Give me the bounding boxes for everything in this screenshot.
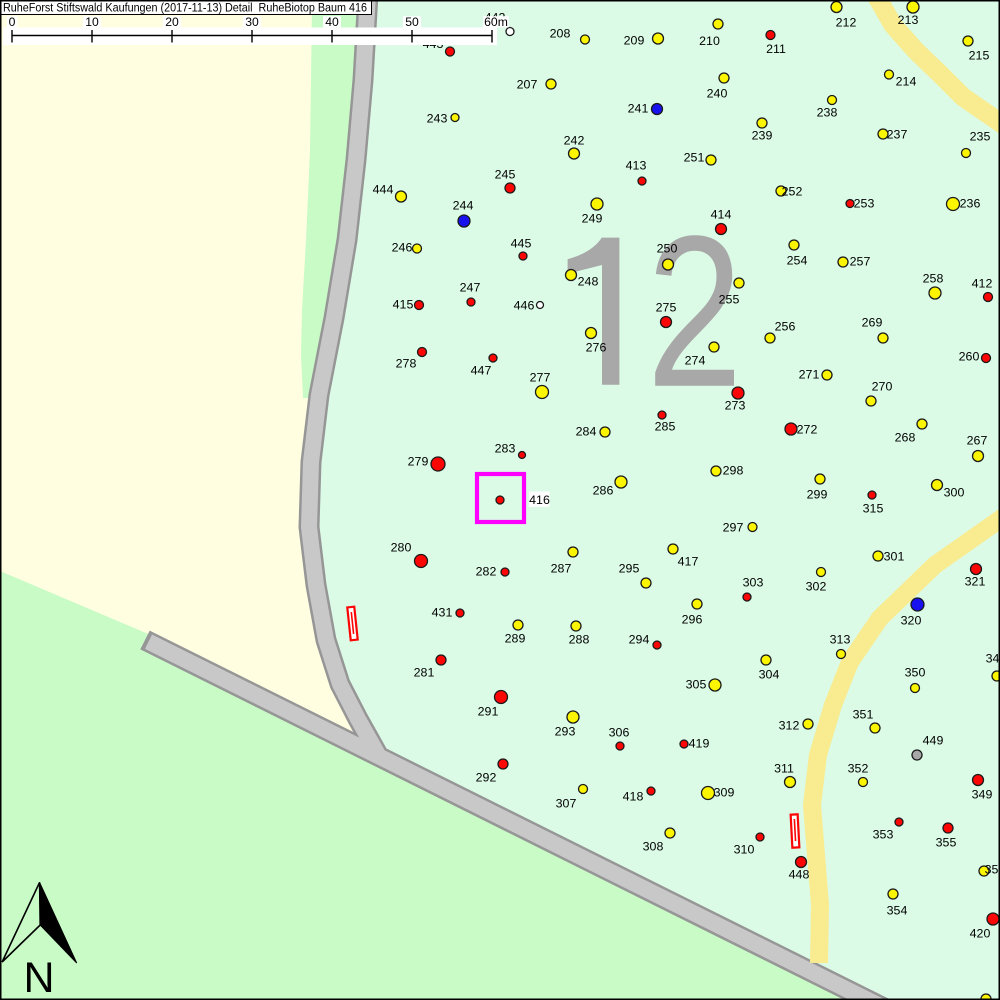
svg-text:257: 257 (850, 254, 871, 268)
svg-text:289: 289 (505, 631, 526, 645)
svg-text:245: 245 (495, 167, 516, 181)
svg-text:235: 235 (970, 129, 991, 143)
svg-text:315: 315 (863, 501, 884, 515)
svg-text:300: 300 (944, 485, 965, 499)
svg-text:215: 215 (969, 48, 990, 62)
svg-text:349: 349 (972, 787, 993, 801)
svg-text:354: 354 (887, 903, 908, 917)
svg-text:RuheForst Stiftswald Kaufungen: RuheForst Stiftswald Kaufungen (2017-11-… (3, 1, 367, 15)
svg-text:292: 292 (476, 770, 497, 784)
svg-text:30: 30 (245, 15, 259, 29)
svg-text:254: 254 (787, 253, 808, 267)
svg-text:412: 412 (972, 276, 993, 290)
svg-text:418: 418 (623, 789, 644, 803)
svg-text:270: 270 (872, 379, 893, 393)
svg-text:449: 449 (923, 733, 944, 747)
svg-text:237: 237 (887, 127, 908, 141)
svg-text:255: 255 (719, 292, 740, 306)
svg-text:209: 209 (624, 33, 645, 47)
svg-text:417: 417 (678, 554, 699, 568)
svg-text:413: 413 (626, 158, 647, 172)
svg-text:271: 271 (799, 367, 820, 381)
svg-text:355: 355 (936, 835, 957, 849)
svg-text:20: 20 (165, 15, 179, 29)
svg-text:240: 240 (707, 86, 728, 100)
svg-text:291: 291 (478, 704, 499, 718)
svg-text:256: 256 (775, 319, 796, 333)
svg-text:277: 277 (530, 370, 551, 384)
svg-text:0: 0 (9, 15, 16, 29)
svg-text:273: 273 (725, 398, 746, 412)
svg-text:252: 252 (782, 184, 803, 198)
svg-text:238: 238 (817, 105, 838, 119)
svg-text:446: 446 (514, 298, 535, 312)
svg-text:295: 295 (619, 561, 640, 575)
svg-text:308: 308 (643, 839, 664, 853)
svg-text:297: 297 (723, 520, 744, 534)
svg-text:284: 284 (576, 424, 597, 438)
svg-text:239: 239 (752, 128, 773, 142)
svg-text:50: 50 (405, 15, 419, 29)
svg-text:247: 247 (460, 280, 481, 294)
svg-text:288: 288 (569, 632, 590, 646)
svg-text:280: 280 (391, 540, 412, 554)
svg-text:313: 313 (830, 632, 851, 646)
svg-text:351: 351 (853, 707, 874, 721)
svg-text:445: 445 (511, 236, 532, 250)
svg-text:420: 420 (970, 926, 991, 940)
svg-text:268: 268 (895, 430, 916, 444)
svg-text:306: 306 (609, 725, 630, 739)
svg-text:352: 352 (848, 761, 869, 775)
svg-text:283: 283 (495, 441, 516, 455)
svg-text:303: 303 (743, 575, 764, 589)
svg-text:286: 286 (593, 483, 614, 497)
svg-text:305: 305 (686, 677, 707, 691)
svg-text:447: 447 (471, 363, 492, 377)
svg-text:213: 213 (898, 13, 919, 27)
svg-text:60m: 60m (484, 15, 508, 29)
svg-text:321: 321 (965, 574, 986, 588)
svg-text:296: 296 (682, 612, 703, 626)
svg-text:207: 207 (517, 77, 538, 91)
svg-text:312: 312 (779, 718, 800, 732)
svg-text:258: 258 (923, 271, 944, 285)
svg-text:246: 246 (392, 240, 413, 254)
svg-text:287: 287 (551, 561, 572, 575)
svg-text:253: 253 (854, 196, 875, 210)
svg-text:356: 356 (985, 862, 1000, 876)
svg-text:416: 416 (529, 493, 550, 507)
svg-text:241: 241 (628, 101, 649, 115)
svg-text:304: 304 (759, 667, 780, 681)
svg-text:299: 299 (807, 487, 828, 501)
svg-text:249: 249 (582, 211, 603, 225)
svg-text:260: 260 (959, 349, 980, 363)
svg-text:279: 279 (408, 454, 429, 468)
svg-text:40: 40 (325, 15, 339, 29)
svg-text:250: 250 (657, 241, 678, 255)
svg-text:243: 243 (427, 111, 448, 125)
svg-text:N: N (23, 954, 54, 1000)
svg-text:274: 274 (685, 353, 706, 367)
svg-text:267: 267 (967, 433, 988, 447)
svg-text:310: 310 (734, 842, 755, 856)
svg-text:242: 242 (564, 133, 585, 147)
svg-text:244: 244 (453, 198, 474, 212)
svg-text:282: 282 (476, 564, 497, 578)
svg-text:311: 311 (774, 761, 794, 775)
svg-text:353: 353 (873, 827, 894, 841)
svg-text:302: 302 (806, 579, 827, 593)
svg-text:285: 285 (655, 419, 676, 433)
svg-text:212: 212 (836, 15, 857, 29)
svg-text:210: 210 (699, 34, 720, 48)
svg-text:309: 309 (714, 785, 735, 799)
svg-text:269: 269 (862, 315, 883, 329)
svg-text:448: 448 (789, 867, 810, 881)
svg-text:350: 350 (905, 665, 926, 679)
svg-text:236: 236 (960, 196, 981, 210)
svg-text:10: 10 (85, 15, 99, 29)
svg-text:414: 414 (711, 207, 732, 221)
svg-text:419: 419 (689, 736, 710, 750)
svg-text:208: 208 (550, 26, 571, 40)
svg-text:272: 272 (797, 422, 818, 436)
svg-text:275: 275 (656, 300, 677, 314)
svg-text:301: 301 (884, 549, 905, 563)
svg-text:415: 415 (393, 297, 414, 311)
svg-text:251: 251 (684, 150, 705, 164)
svg-text:214: 214 (896, 74, 917, 88)
svg-text:298: 298 (723, 463, 744, 477)
svg-text:444: 444 (373, 182, 394, 196)
svg-text:278: 278 (396, 356, 417, 370)
svg-text:294: 294 (629, 632, 650, 646)
svg-text:320: 320 (901, 613, 922, 627)
svg-text:276: 276 (586, 340, 607, 354)
svg-text:248: 248 (578, 274, 599, 288)
svg-text:307: 307 (556, 796, 577, 810)
svg-text:431: 431 (432, 605, 453, 619)
svg-text:346: 346 (986, 651, 1000, 665)
svg-text:281: 281 (414, 665, 435, 679)
svg-text:293: 293 (555, 724, 576, 738)
svg-text:211: 211 (766, 42, 786, 56)
